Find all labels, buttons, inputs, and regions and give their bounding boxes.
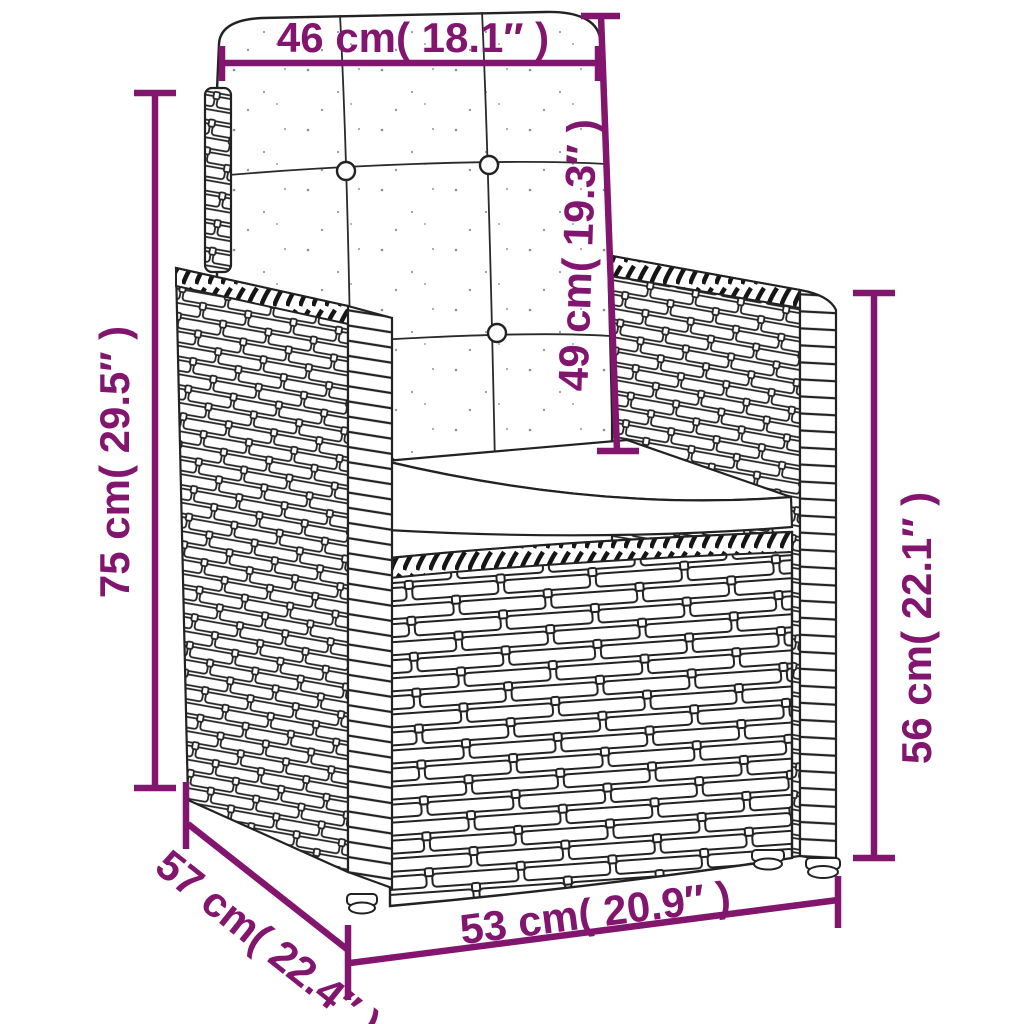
tufting-button xyxy=(337,162,355,180)
tufting-button xyxy=(488,324,506,342)
left-armrest xyxy=(176,268,392,914)
back-frame-post xyxy=(205,88,231,272)
left-armrest-outer-panel xyxy=(176,268,348,872)
dimension-label-back-cushion-height: 49 cm( 19.3″ ) xyxy=(549,118,605,392)
dimension-label-back-width: 46 cm( 18.1″ ) xyxy=(277,14,549,61)
left-armrest-front-post xyxy=(348,306,392,888)
dimension-overall-height xyxy=(134,93,176,788)
front-right-foot xyxy=(754,859,782,870)
armchair-dimension-diagram: 46 cm( 18.1″ ) 49 cm( 19.3″ ) 75 cm( 29.… xyxy=(0,0,1024,1024)
tufting-button xyxy=(480,156,498,174)
front-base-panel xyxy=(390,532,792,906)
right-armrest-outer-side xyxy=(800,290,836,862)
dimension-diagram-canvas: 46 cm( 18.1″ ) 49 cm( 19.3″ ) 75 cm( 29.… xyxy=(0,0,1024,1024)
dimension-armrest-height xyxy=(853,293,895,858)
front-base xyxy=(390,532,792,906)
dimension-label-armrest-height: 56 cm( 22.1″ ) xyxy=(893,492,940,764)
front-left-foot xyxy=(349,903,375,914)
dimension-label-overall-height: 75 cm( 29.5″ ) xyxy=(91,326,138,598)
right-rear-foot xyxy=(808,866,838,878)
